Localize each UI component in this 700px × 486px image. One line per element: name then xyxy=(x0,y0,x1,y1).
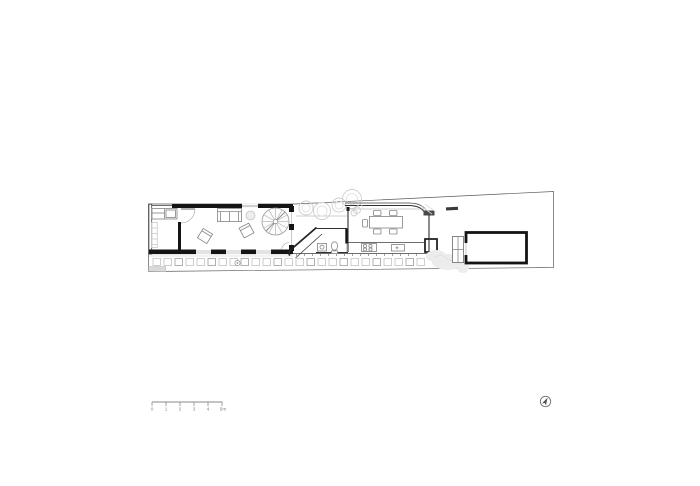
shelf-unit xyxy=(152,223,158,248)
sink xyxy=(318,244,327,252)
sofa xyxy=(218,209,242,222)
flower-symbol xyxy=(235,260,240,265)
dining-table xyxy=(363,211,403,235)
spiral-staircase xyxy=(262,208,289,235)
north-arrow-icon xyxy=(540,396,550,406)
scale-tick-label: 1 xyxy=(165,407,168,412)
scale-tick-label: 0 xyxy=(151,407,154,412)
living-room xyxy=(197,209,255,244)
scale-tick-label: 4 xyxy=(207,407,210,412)
floor-plan-drawing: 0 1 2 3 4 5m xyxy=(0,0,700,486)
scale-ticks xyxy=(152,402,222,406)
drawing-sheet: 0 1 2 3 4 5m xyxy=(0,0,700,486)
house-walls xyxy=(149,204,428,255)
side-table xyxy=(246,211,255,220)
studio-outbuilding xyxy=(464,233,527,264)
courtyard-trees xyxy=(296,190,362,220)
garden-cupboard xyxy=(453,237,464,263)
downpipe-block xyxy=(424,211,435,216)
kitchen-counter xyxy=(348,239,437,252)
kitchen-dining xyxy=(345,203,437,253)
boundary-gate xyxy=(446,207,458,211)
scale-tick-label: 3 xyxy=(193,407,196,412)
scale-tick-label: 5m xyxy=(220,407,227,412)
entry-room xyxy=(152,209,177,248)
paver-row xyxy=(153,259,425,266)
internal-door xyxy=(178,209,195,250)
toilet xyxy=(331,242,337,254)
armchair xyxy=(239,223,254,238)
entry-step xyxy=(149,267,166,272)
armchair xyxy=(197,228,212,243)
scale-tick-label: 2 xyxy=(179,407,182,412)
scale-bar: 0 1 2 3 4 5m xyxy=(151,402,227,412)
wardrobe xyxy=(152,209,177,220)
bathroom xyxy=(316,229,349,254)
